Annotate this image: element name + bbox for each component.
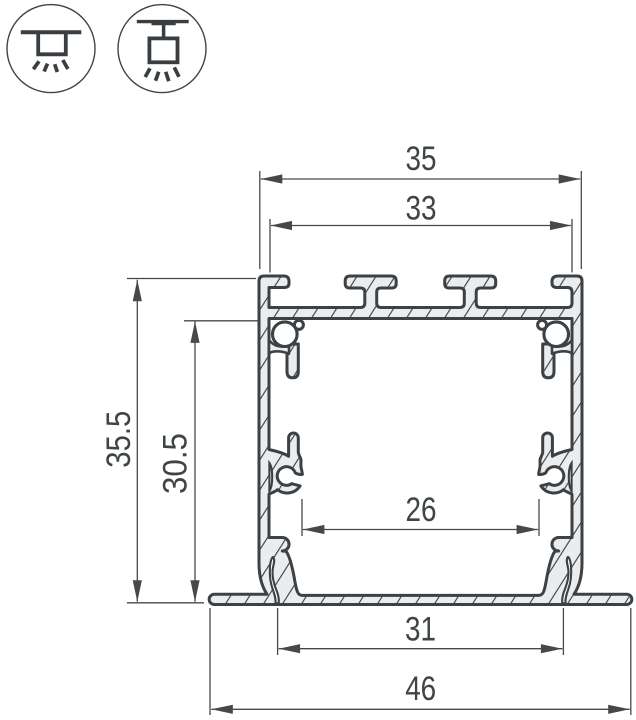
svg-text:35.5: 35.5 — [100, 411, 138, 468]
svg-text:30.5: 30.5 — [157, 433, 195, 494]
svg-text:35: 35 — [406, 140, 437, 178]
svg-text:31: 31 — [405, 611, 436, 649]
svg-text:26: 26 — [406, 491, 437, 529]
svg-text:33: 33 — [406, 190, 437, 228]
svg-text:46: 46 — [405, 670, 436, 708]
